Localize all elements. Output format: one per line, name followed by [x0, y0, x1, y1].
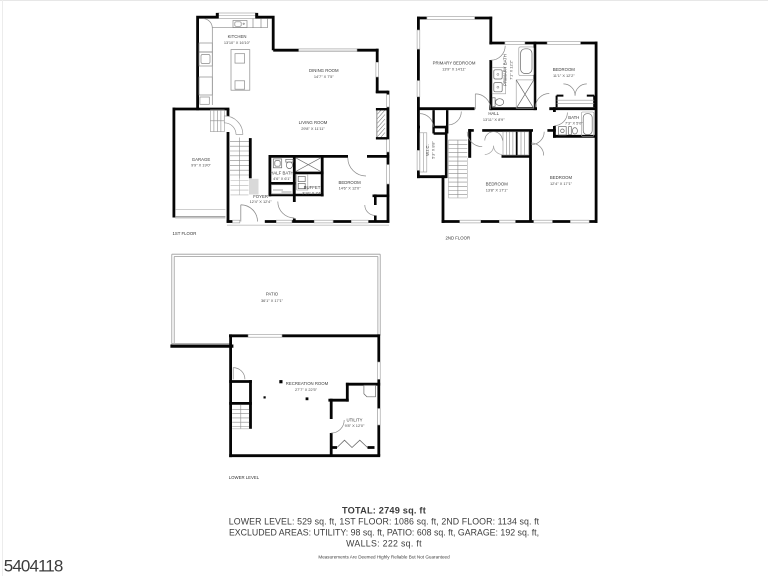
- svg-text:36'1" X 17'1": 36'1" X 17'1": [261, 298, 284, 303]
- svg-text:HALF BATH: HALF BATH: [270, 170, 293, 175]
- svg-text:9'9" X 19'0": 9'9" X 19'0": [191, 163, 211, 168]
- svg-text:27'7" X 22'5": 27'7" X 22'5": [295, 387, 318, 392]
- svg-text:LOWER LEVEL: 529 sq. ft, 1ST F: LOWER LEVEL: 529 sq. ft, 1ST FLOOR: 1086…: [229, 517, 540, 527]
- svg-text:Measurements Are Deemed Highly: Measurements Are Deemed Highly Reliable …: [318, 555, 450, 560]
- svg-text:EXCLUDED AREAS: UTILITY: 98 sq: EXCLUDED AREAS: UTILITY: 98 sq. ft, PATI…: [229, 528, 539, 538]
- svg-text:7'1" X 12'2": 7'1" X 12'2": [509, 59, 514, 79]
- svg-text:14'7" X 7'5": 14'7" X 7'5": [314, 74, 334, 79]
- svg-text:13'11" X 8'9": 13'11" X 8'9": [483, 117, 505, 122]
- svg-text:WALLS: 222 sq. ft: WALLS: 222 sq. ft: [346, 539, 422, 549]
- svg-text:3'10" X 7'4": 3'10" X 7'4": [302, 191, 322, 196]
- svg-text:W.I.C.: W.I.C.: [425, 144, 430, 156]
- svg-text:PRIMARY BEDROOM: PRIMARY BEDROOM: [433, 61, 476, 66]
- svg-text:KITCHEN: KITCHEN: [228, 34, 247, 39]
- svg-text:5404118: 5404118: [4, 557, 63, 576]
- svg-text:PRIMARY BATH: PRIMARY BATH: [503, 54, 508, 86]
- svg-text:12'4" X 12'4": 12'4" X 12'4": [250, 199, 273, 204]
- svg-text:2ND FLOOR: 2ND FLOOR: [446, 236, 471, 241]
- svg-text:BEDROOM: BEDROOM: [486, 182, 509, 187]
- svg-text:11'1" X 12'2": 11'1" X 12'2": [553, 73, 575, 78]
- svg-text:4'6" X 6'1": 4'6" X 6'1": [273, 176, 291, 181]
- svg-text:BATH: BATH: [568, 115, 579, 120]
- svg-text:TOTAL: 2749 sq. ft: TOTAL: 2749 sq. ft: [342, 505, 426, 515]
- svg-text:7'3" X 5'0": 7'3" X 5'0": [565, 120, 583, 125]
- svg-text:LOWER LEVEL: LOWER LEVEL: [229, 475, 260, 480]
- svg-text:BEDROOM: BEDROOM: [338, 180, 361, 185]
- svg-text:PATIO: PATIO: [266, 292, 279, 297]
- svg-text:1ST FLOOR: 1ST FLOOR: [173, 231, 197, 236]
- svg-text:DINING ROOM: DINING ROOM: [309, 68, 339, 73]
- svg-text:12'4" X 17'1": 12'4" X 17'1": [550, 181, 573, 186]
- svg-text:BUFFET: BUFFET: [304, 185, 321, 190]
- svg-text:13'9" X 14'11": 13'9" X 14'11": [442, 67, 466, 72]
- svg-text:HALL: HALL: [488, 111, 499, 116]
- svg-text:9'8" X 12'0": 9'8" X 12'0": [345, 423, 365, 428]
- svg-text:BEDROOM: BEDROOM: [550, 175, 573, 180]
- svg-text:RECREATION ROOM: RECREATION ROOM: [286, 381, 329, 386]
- svg-text:BEDROOM: BEDROOM: [553, 67, 576, 72]
- svg-text:LIVING ROOM: LIVING ROOM: [299, 120, 328, 125]
- svg-text:5'3" X 8'8": 5'3" X 8'8": [431, 141, 436, 159]
- svg-text:13'8" X 17'1": 13'8" X 17'1": [486, 188, 509, 193]
- svg-text:UTILITY: UTILITY: [347, 418, 363, 423]
- svg-text:29'8" X 11'11": 29'8" X 11'11": [301, 126, 325, 131]
- svg-text:GARAGE: GARAGE: [192, 157, 211, 162]
- svg-text:14'6" X 12'0": 14'6" X 12'0": [339, 186, 362, 191]
- svg-text:13'10" X 16'10": 13'10" X 16'10": [224, 40, 251, 45]
